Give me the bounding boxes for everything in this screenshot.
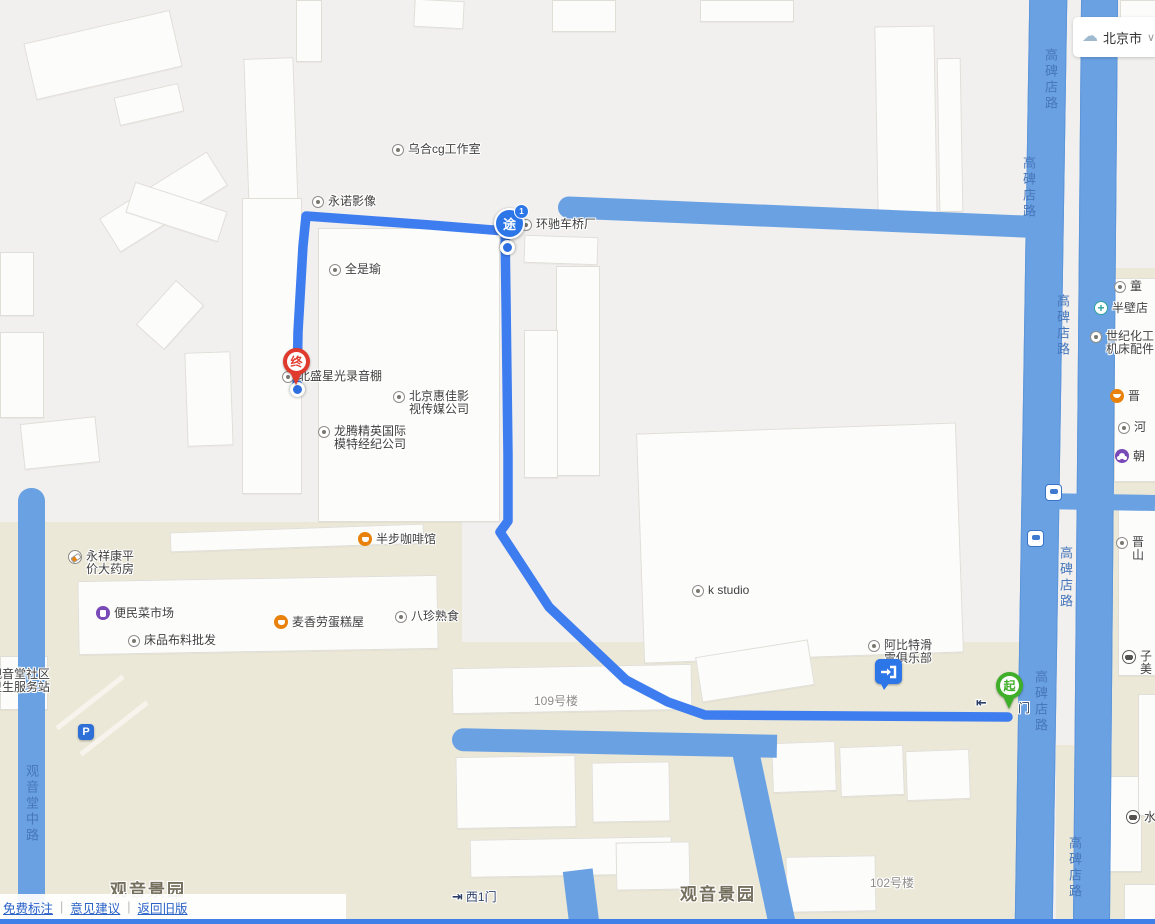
poi-chuangpin-wholesale[interactable]: 床品布料批发: [128, 634, 216, 647]
building: [243, 57, 298, 209]
building: [636, 422, 964, 663]
gate-start-icon-part[interactable]: ⇤: [976, 697, 987, 709]
poi-dot-icon: [128, 635, 140, 647]
building: [839, 745, 905, 797]
poi-dot-icon: [1116, 537, 1128, 549]
poi-huijia-media[interactable]: 北京惠佳影视传媒公司: [393, 390, 469, 416]
parking-icon[interactable]: P: [78, 724, 94, 740]
link-old-version[interactable]: 返回旧版: [138, 898, 188, 917]
cafe-icon: [274, 615, 288, 629]
route-via-dot: [500, 240, 515, 255]
link-free-annotation[interactable]: 免费标注: [3, 898, 53, 917]
poi-he[interactable]: 河: [1118, 421, 1146, 434]
building-label-109: 109号楼: [534, 692, 578, 709]
road-stub-south: [563, 868, 599, 924]
poi-jinshan[interactable]: 晋山: [1116, 536, 1144, 562]
cloud-rain-icon: ☁: [1082, 29, 1098, 45]
gate-west1[interactable]: ⇥ 西1门: [452, 888, 497, 905]
building: [296, 0, 322, 62]
route-start-pin[interactable]: 起: [996, 672, 1023, 711]
poi-longteng-model-agency[interactable]: 龙腾精英国际模特经纪公司: [318, 425, 406, 451]
poi-banbu-cafe[interactable]: 半步咖啡馆: [358, 532, 436, 546]
map-canvas[interactable]: 高碑店路 高碑店路 高碑店路 高碑店路 高碑店路 高碑店路 观音堂中路 乌合cg…: [0, 0, 1155, 924]
road-horizontal-north: [558, 196, 1050, 239]
poi-shiji-machine-parts[interactable]: 世纪化工机床配件: [1090, 330, 1154, 356]
poi-quanshiyu[interactable]: 全是瑜: [329, 263, 381, 276]
poi-wuhecg-studio[interactable]: 乌合cg工作室: [392, 143, 481, 156]
poi-tong[interactable]: 童: [1114, 280, 1142, 293]
route-end-pin[interactable]: 终: [283, 348, 310, 387]
car-icon: [1126, 810, 1140, 824]
poi-guanyintang-clinic[interactable]: 观音堂社区卫生服务站: [0, 668, 50, 694]
building-label-102: 102号楼: [870, 874, 914, 891]
poi-dot-icon: [868, 640, 880, 652]
gate-icon: ⇤: [976, 697, 987, 709]
poi-dot-icon: [393, 391, 405, 403]
poi-maixiang-bakery[interactable]: 麦香劳蛋糕屋: [274, 615, 364, 629]
poi-dot-icon: [1090, 331, 1102, 343]
poi-zimei-auto[interactable]: 子美: [1122, 650, 1152, 676]
enter-arrow-icon: [880, 665, 897, 679]
road-label-gaobeidian: 高碑店路: [1043, 48, 1057, 112]
building: [524, 330, 558, 478]
market-icon: [96, 606, 110, 620]
bottom-panel-edge: [0, 919, 1155, 924]
building: [591, 761, 670, 822]
bus-stop-icon[interactable]: [1045, 484, 1062, 501]
weather-widget[interactable]: ☁ 北京市 ∨: [1073, 17, 1155, 57]
gate-icon: ⇥: [452, 891, 463, 903]
poi-bazhen-deli[interactable]: 八珍熟食: [395, 610, 459, 623]
poi-banbidian[interactable]: + 半壁店: [1094, 301, 1148, 315]
building: [552, 0, 616, 32]
car-icon: [1122, 650, 1136, 664]
poi-huanchi-axle-factory[interactable]: 环驰车桥厂: [520, 218, 596, 231]
footer-links-bar: 免费标注 | 意见建议 | 返回旧版: [0, 894, 346, 920]
chevron-down-icon: ∨: [1147, 31, 1155, 44]
building: [786, 855, 877, 913]
building: [524, 235, 599, 266]
poi-chao[interactable]: 朝: [1115, 449, 1145, 463]
grape-icon: [1115, 449, 1129, 463]
poi-dot-icon: [1118, 422, 1130, 434]
building: [905, 749, 971, 801]
building: [937, 58, 964, 212]
building: [114, 83, 185, 126]
area-label-guanyinjingyuan-center: 观音景园: [680, 880, 756, 905]
building: [874, 25, 937, 216]
weather-city: 北京市: [1103, 28, 1142, 47]
cafe-icon: [358, 532, 372, 546]
building: [1124, 884, 1155, 924]
hospital-icon: +: [1094, 301, 1108, 315]
road-guanyintang-middle: [18, 488, 45, 924]
poi-k-studio[interactable]: k studio: [692, 584, 749, 597]
poi-dot-icon: [312, 196, 324, 208]
road-label-gaobeidian: 高碑店路: [1021, 156, 1035, 220]
entrance-marker-icon[interactable]: [875, 659, 902, 684]
route-via-marker[interactable]: 途 1: [494, 208, 525, 239]
poi-dot-icon: [692, 585, 704, 597]
road-label-gaobeidian: 高碑店路: [1033, 670, 1047, 734]
poi-dot-icon: [392, 144, 404, 156]
road-label-guanyintang: 观音堂中路: [24, 764, 38, 844]
poi-bianmin-market[interactable]: 便民菜市场: [96, 606, 174, 620]
poi-dot-icon: [1114, 281, 1126, 293]
building: [1138, 694, 1155, 816]
building: [700, 0, 794, 22]
road-label-gaobeidian: 高碑店路: [1067, 836, 1081, 900]
building: [771, 741, 837, 793]
road-label-gaobeidian: 高碑店路: [1055, 294, 1069, 358]
poi-shui-auto[interactable]: 水: [1126, 810, 1155, 824]
via-badge: 1: [514, 204, 529, 219]
building: [20, 416, 100, 470]
road-label-gaobeidian: 高碑店路: [1058, 546, 1072, 610]
poi-dot-icon: [318, 426, 330, 438]
poi-yongnuo-imaging[interactable]: 永诺影像: [312, 195, 376, 208]
building: [0, 332, 44, 418]
building: [136, 280, 204, 350]
building: [455, 755, 576, 829]
building: [242, 198, 302, 494]
building: [413, 0, 464, 29]
poi-dot-icon: [395, 611, 407, 623]
poi-dot-icon: [329, 264, 341, 276]
bus-stop-icon[interactable]: [1027, 530, 1044, 547]
poi-jin-restaurant[interactable]: 晋: [1110, 389, 1140, 403]
poi-yongxiang-pharmacy[interactable]: 永祥康平价大药房: [68, 550, 134, 576]
building: [184, 351, 233, 447]
link-feedback[interactable]: 意见建议: [70, 898, 120, 917]
bowl-icon: [1110, 389, 1124, 403]
building: [0, 252, 34, 316]
building: [556, 266, 600, 476]
pharmacy-icon: [68, 550, 82, 564]
